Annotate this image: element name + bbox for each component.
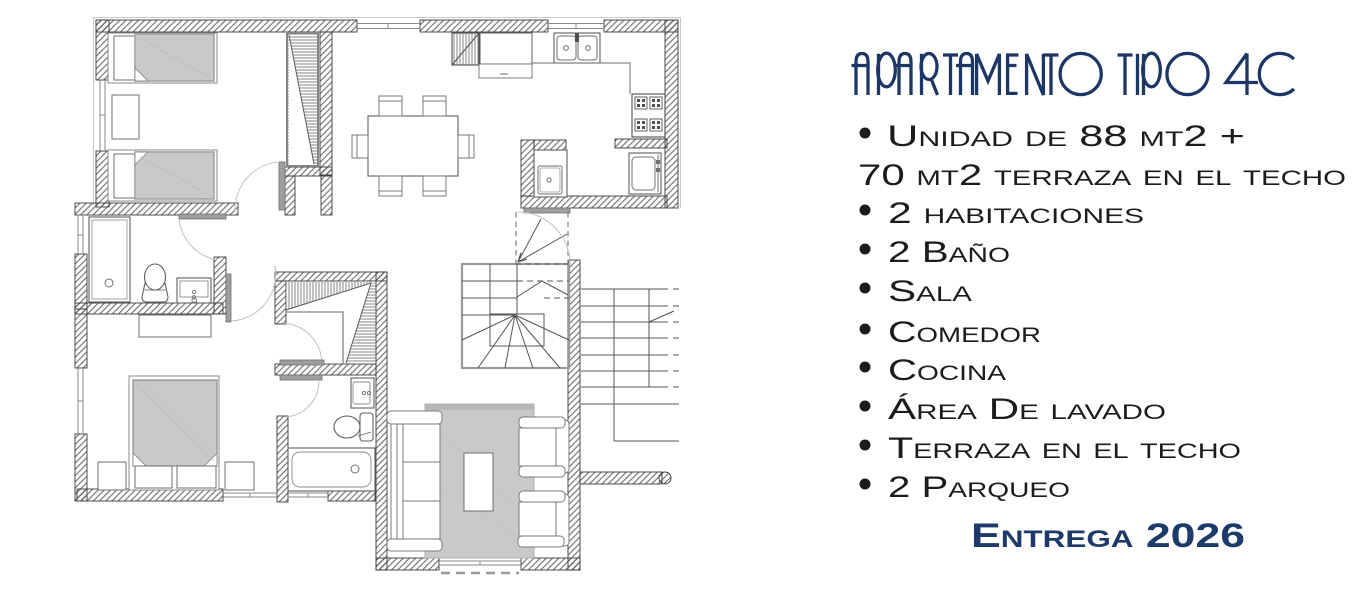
svg-text:2 Parqueo: 2 Parqueo: [888, 471, 1070, 504]
svg-text:Entrega 2026: Entrega 2026: [971, 517, 1245, 555]
svg-text:Área De lavado: Área De lavado: [888, 393, 1166, 426]
svg-text:70 mt2 terraza en el techo: 70 mt2 terraza en el techo: [858, 159, 1346, 192]
svg-text:Sala: Sala: [888, 275, 972, 308]
svg-text:2 habitaciones: 2 habitaciones: [888, 197, 1144, 230]
svg-text:Terraza en el techo: Terraza en el techo: [888, 432, 1241, 465]
svg-text:Unidad de 88 mt2 +: Unidad de 88 mt2 +: [887, 120, 1245, 153]
svg-text:Cocina: Cocina: [888, 354, 1006, 387]
svg-text:2 Baño: 2 Baño: [888, 236, 1010, 269]
svg-text:Comedor: Comedor: [888, 316, 1041, 349]
